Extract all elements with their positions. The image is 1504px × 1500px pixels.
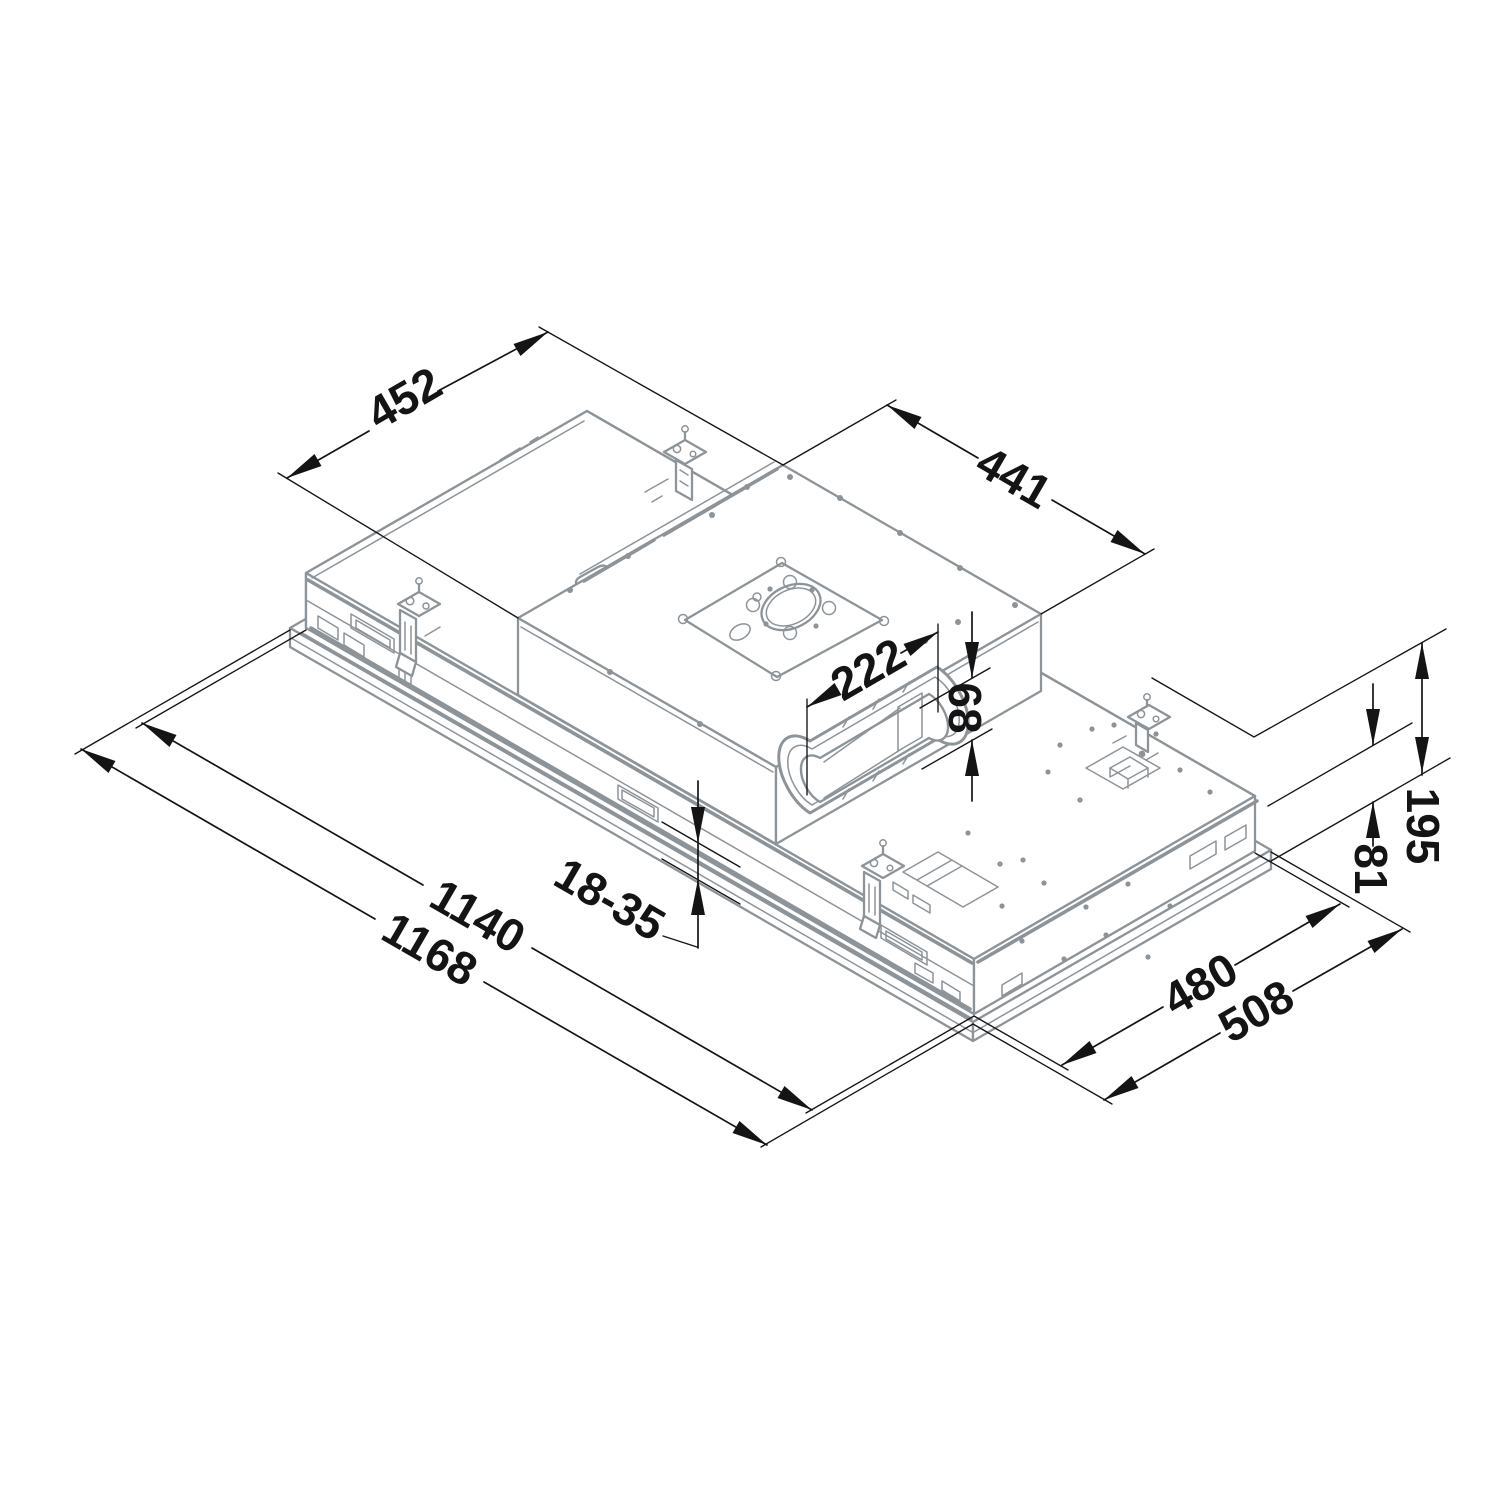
dim-label-18-35: 18-35 (546, 847, 674, 951)
dim-label-81: 81 (1345, 843, 1397, 894)
dim-label-441: 441 (968, 435, 1060, 518)
dim-label-452: 452 (358, 356, 450, 439)
isometric-hood-drawing: 452 441 222 68 (0, 0, 1504, 1500)
dim-label-68: 68 (939, 682, 991, 733)
technical-drawing-page: 452 441 222 68 (0, 0, 1504, 1500)
dim-label-195: 195 (1397, 788, 1449, 865)
